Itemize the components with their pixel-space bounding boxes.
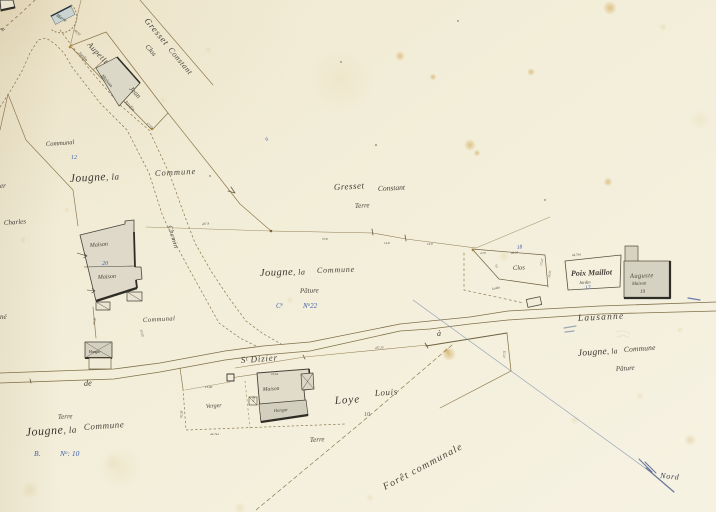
svg-text:à: à bbox=[437, 329, 441, 338]
svg-text:B.: B. bbox=[34, 449, 41, 458]
svg-text:né: né bbox=[0, 313, 8, 321]
svg-text:Gresset: Gresset bbox=[334, 180, 365, 192]
svg-text:Nord: Nord bbox=[659, 471, 680, 482]
svg-text:Hangar: Hangar bbox=[88, 350, 101, 354]
svg-text:Pâture: Pâture bbox=[615, 364, 635, 373]
svg-text:Clos: Clos bbox=[513, 264, 526, 272]
svg-text:10: 10 bbox=[364, 412, 370, 418]
svg-text:No22: No22 bbox=[302, 302, 318, 310]
svg-text:No: 10: No: 10 bbox=[59, 449, 80, 458]
svg-text:er: er bbox=[0, 182, 6, 190]
svg-text:de: de bbox=[83, 377, 92, 388]
svg-text:20: 20 bbox=[102, 261, 108, 267]
svg-text:Louis: Louis bbox=[373, 386, 398, 398]
svg-text:437 8: 437 8 bbox=[202, 222, 210, 226]
svg-text:Pâture: Pâture bbox=[299, 286, 319, 295]
svg-text:Commune: Commune bbox=[317, 265, 355, 275]
svg-text:19: 19 bbox=[640, 290, 646, 295]
svg-text:Terre: Terre bbox=[310, 435, 325, 444]
svg-text:Verger: Verger bbox=[206, 403, 223, 410]
svg-text:Terre: Terre bbox=[58, 412, 73, 421]
svg-text:Loye: Loye bbox=[333, 393, 360, 407]
svg-text:Maison: Maison bbox=[631, 281, 647, 287]
svg-text:Charles: Charles bbox=[4, 217, 27, 227]
svg-text:Hangar: Hangar bbox=[273, 407, 289, 413]
svg-text:Maison: Maison bbox=[262, 386, 280, 393]
svg-text:Auguste: Auguste bbox=[629, 272, 654, 280]
svg-text:Poix Maillot: Poix Maillot bbox=[571, 268, 613, 278]
svg-text:12: 12 bbox=[71, 155, 77, 161]
svg-text:Constant: Constant bbox=[378, 183, 406, 193]
svg-text:Terre: Terre bbox=[355, 201, 370, 210]
svg-text:17: 17 bbox=[585, 285, 591, 291]
